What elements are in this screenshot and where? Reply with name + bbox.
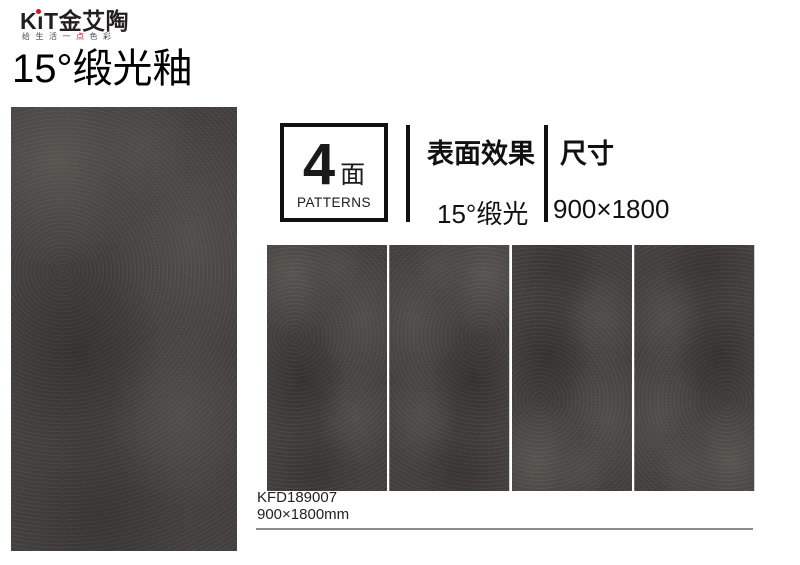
page-title: 15°缎光釉	[12, 47, 193, 91]
brand-tagline: 给生活一点色彩	[22, 31, 117, 42]
size-label: 尺寸	[560, 132, 614, 171]
footer-divider	[256, 528, 753, 530]
spec-divider-2	[544, 125, 548, 222]
logo-latin: KıT	[20, 9, 59, 33]
tagline-accent: 点	[76, 32, 90, 41]
surface-effect-label: 表面效果	[427, 132, 535, 171]
patterns-count-box: 4 面 PATTERNS	[280, 123, 388, 222]
patterns-unit: 面	[340, 163, 365, 188]
tile-swatch	[512, 245, 632, 491]
size-value: 900×1800	[553, 194, 669, 225]
tile-swatch	[267, 245, 387, 491]
patterns-count: 4	[303, 139, 335, 190]
brand-block: KıT金艾陶	[20, 9, 129, 33]
logo-red-dot-icon	[36, 9, 41, 14]
tagline-right: 色彩	[90, 32, 117, 41]
product-code: KFD189007	[257, 489, 349, 506]
brand-logo: KıT金艾陶	[20, 9, 129, 33]
patterns-count-row: 4 面	[303, 139, 365, 190]
pattern-swatch-strip	[267, 245, 754, 491]
tile-swatch	[389, 245, 509, 491]
tile-swatch	[634, 245, 754, 491]
product-code-block: KFD189007 900×1800mm	[257, 489, 349, 523]
spec-divider-1	[406, 125, 410, 222]
tagline-left: 给生活一	[22, 32, 76, 41]
product-size: 900×1800mm	[257, 506, 349, 523]
product-tile-image	[11, 107, 237, 551]
patterns-caption: PATTERNS	[297, 195, 371, 210]
catalog-page: KıT金艾陶 给生活一点色彩 15°缎光釉 4 面 PATTERNS 表面效果 …	[0, 0, 800, 565]
surface-effect-value: 15°缎光	[437, 194, 528, 231]
